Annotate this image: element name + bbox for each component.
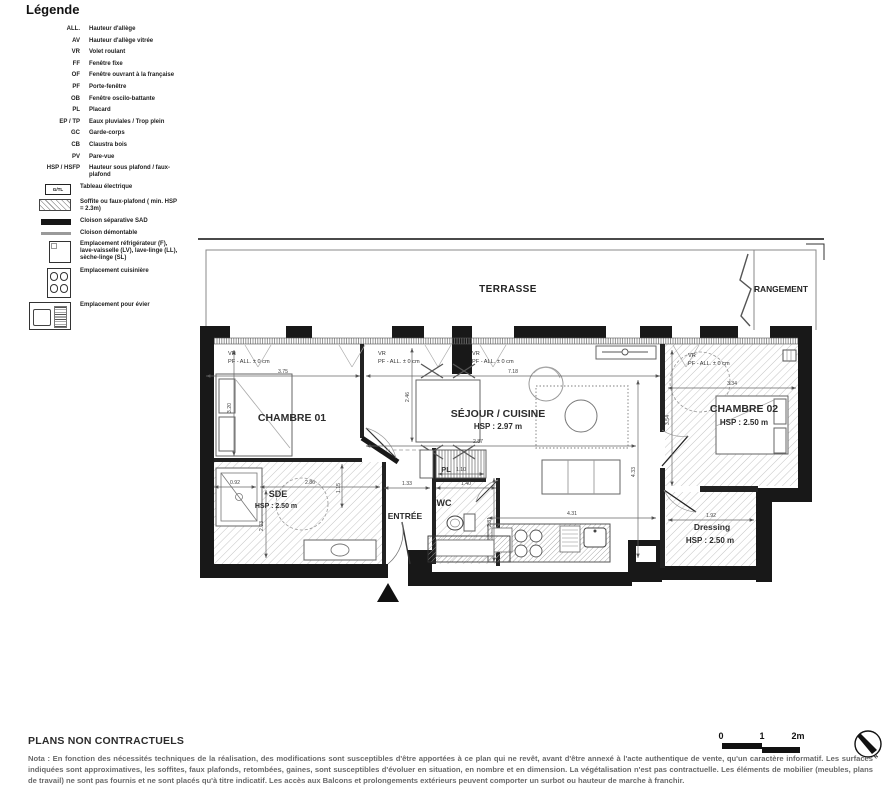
legend-item-all: ALL. Hauteur d'allège bbox=[26, 26, 222, 33]
legend-label: Fenêtre oscilo-battante bbox=[89, 96, 155, 103]
nota-disclaimer: Nota : En fonction des nécessités techni… bbox=[28, 753, 873, 786]
dim-chambre01-width: 3.75 bbox=[278, 369, 288, 375]
ep-tp-box bbox=[783, 350, 796, 361]
legend-item-soffit: Soffite ou faux-plafond ( min. HSP = 2.3… bbox=[26, 199, 222, 213]
legend-item-pl: PL Placard bbox=[26, 107, 222, 114]
window-label-pf: PF - ALL. ± 0 cm bbox=[688, 361, 730, 367]
dim-chambre01-height: 3.20 bbox=[227, 403, 233, 413]
armchair bbox=[529, 367, 563, 401]
scale-tick-1: 1 bbox=[759, 731, 764, 741]
window-label-vr: VR bbox=[472, 351, 480, 357]
legend-label: Hauteur sous plafond / faux-plafond bbox=[89, 165, 191, 179]
legend-abbr: OF bbox=[26, 72, 89, 79]
room-label-chambre01: CHAMBRE 01 bbox=[258, 412, 326, 424]
entry-cabinet bbox=[428, 536, 510, 562]
legend-abbr: FF bbox=[26, 61, 89, 68]
sad-partition-icon bbox=[41, 219, 71, 225]
legend-abbr: PL bbox=[26, 107, 89, 114]
window-strip bbox=[206, 338, 810, 344]
legend-label: Porte-fenêtre bbox=[89, 84, 126, 91]
scale-tick-0: 0 bbox=[718, 731, 723, 741]
window-label-pf: PF - ALL. ± 0 cm bbox=[472, 359, 514, 365]
legend-item-hsp: HSP / HSFP Hauteur sous plafond / faux-p… bbox=[26, 165, 222, 179]
dim-placard-width: 1.10 bbox=[456, 467, 466, 473]
room-label-entree: ENTRÉE bbox=[388, 511, 423, 521]
plans-non-contractuels-title: PLANS NON CONTRACTUELS bbox=[28, 735, 184, 747]
legend-label: Fenêtre ouvrant à la française bbox=[89, 72, 174, 79]
legend-abbr: PV bbox=[26, 154, 89, 161]
soffit-hatch-icon bbox=[39, 199, 71, 211]
legend-item-pv: PV Pare-vue bbox=[26, 154, 222, 161]
legend-item-cooker: Emplacement cuisinière bbox=[26, 268, 222, 298]
dim-wc-height: 2.81 bbox=[487, 517, 493, 527]
dim-kitchen-width: 4.31 bbox=[567, 511, 577, 517]
shower bbox=[216, 468, 262, 526]
window-label-vr: VR bbox=[688, 353, 696, 359]
legend-item-gc: GC Garde-corps bbox=[26, 130, 222, 137]
legend-item-vr: VR Volet roulant bbox=[26, 49, 222, 56]
cooker-slot-icon bbox=[47, 268, 71, 298]
dim-table-zone: 2.46 bbox=[405, 392, 411, 402]
legend-item-sad: Cloison séparative SAD bbox=[26, 218, 222, 225]
fridge-slot bbox=[560, 526, 580, 552]
legend-abbr: AV bbox=[26, 38, 89, 45]
dim-sejour-width: 7.18 bbox=[508, 369, 518, 375]
legend-item-cb: CB Claustra bois bbox=[26, 142, 222, 149]
legend-item-ff: FF Fenêtre fixe bbox=[26, 61, 222, 68]
legend-abbr: CB bbox=[26, 142, 89, 149]
appliance-slot-icon bbox=[49, 241, 71, 263]
room-label-wc: WC bbox=[437, 498, 452, 508]
window-label-vr: VR bbox=[378, 351, 386, 357]
floor-plan-page: Légende ALL. Hauteur d'allège AV Hauteur… bbox=[0, 0, 892, 800]
legend-item-demountable: Cloison démontable bbox=[26, 230, 222, 237]
legend: Légende ALL. Hauteur d'allège AV Hauteur… bbox=[26, 2, 222, 335]
room-label-terrasse: TERRASSE bbox=[479, 284, 537, 295]
legend-label: Soffite ou faux-plafond ( min. HSP = 2.3… bbox=[80, 199, 182, 213]
dim-sde-height: 2.03 bbox=[259, 521, 265, 531]
dim-sde-width: 2.86 bbox=[305, 480, 315, 486]
washbasin bbox=[304, 540, 376, 560]
demountable-partition-icon bbox=[41, 232, 71, 235]
legend-item-appliance: Emplacement réfrigérateur (F), lave-vais… bbox=[26, 241, 222, 263]
legend-item-av: AV Hauteur d'allège vitrée bbox=[26, 38, 222, 45]
legend-label: Tableau électrique bbox=[80, 184, 132, 191]
window-label-vr: VR bbox=[228, 351, 236, 357]
room-hsp-sejour: HSP : 2.97 m bbox=[474, 422, 522, 431]
legend-item-ob: OB Fenêtre oscilo-battante bbox=[26, 96, 222, 103]
rangement-door-zigzag bbox=[740, 254, 751, 326]
legend-label: Hauteur d'allège bbox=[89, 26, 135, 33]
legend-label: Cloison séparative SAD bbox=[80, 218, 148, 225]
electrical-panel-icon: G/TL bbox=[45, 184, 71, 195]
scale-tick-2m: 2m bbox=[791, 731, 804, 741]
legend-item-sink: Emplacement pour évier bbox=[26, 302, 222, 330]
window-label-pf: PF - ALL. ± 0 cm bbox=[228, 359, 270, 365]
room-label-rangement: RANGEMENT bbox=[754, 284, 809, 294]
legend-label: Fenêtre fixe bbox=[89, 61, 123, 68]
legend-abbr: PF bbox=[26, 84, 89, 91]
legend-abbr: VR bbox=[26, 49, 89, 56]
dim-sejour-inner: 2.87 bbox=[473, 439, 483, 445]
room-label-chambre02: CHAMBRE 02 bbox=[710, 403, 778, 415]
sofa bbox=[542, 460, 620, 494]
room-hsp-dressing: HSP : 2.50 m bbox=[686, 536, 734, 545]
window-label-pf: PF - ALL. ± 0 cm bbox=[378, 359, 420, 365]
room-label-placard: PL bbox=[441, 465, 451, 474]
sink-slot-icon bbox=[29, 302, 71, 330]
dim-wc-width: 1.40 bbox=[461, 481, 471, 487]
legend-label: Placard bbox=[89, 107, 111, 114]
legend-label: Pare-vue bbox=[89, 154, 114, 161]
legend-label: Emplacement cuisinière bbox=[80, 268, 149, 275]
legend-label: Claustra bois bbox=[89, 142, 127, 149]
room-hsp-sde: HSP : 2.50 m bbox=[255, 503, 297, 510]
legend-label: Hauteur d'allège vitrée bbox=[89, 38, 153, 45]
dim-dressing-width: 1.92 bbox=[706, 513, 716, 519]
legend-abbr: OB bbox=[26, 96, 89, 103]
room-label-dressing: Dressing bbox=[694, 522, 730, 532]
dim-shower-width: 0.92 bbox=[230, 480, 240, 486]
legend-label: Volet roulant bbox=[89, 49, 125, 56]
entrance-marker-triangle bbox=[377, 583, 399, 602]
room-label-sejour: SÉJOUR / CUISINE bbox=[451, 407, 546, 420]
floor-plan-drawing: 3.75 7.18 3.34 3.20 2.46 2.87 4.33 3.54 … bbox=[195, 235, 840, 610]
legend-title: Légende bbox=[26, 2, 222, 17]
legend-item-eptp: EP / TP Eaux pluviales / Trop plein bbox=[26, 119, 222, 126]
legend-label: Garde-corps bbox=[89, 130, 125, 137]
legend-label: Emplacement pour évier bbox=[80, 302, 150, 309]
scale-bar: 0 1 2m bbox=[718, 731, 804, 753]
room-label-sde: SDE bbox=[269, 489, 288, 499]
legend-label: Cloison démontable bbox=[80, 230, 137, 237]
legend-item-gtl: G/TL Tableau électrique bbox=[26, 184, 222, 195]
legend-item-pf: PF Porte-fenêtre bbox=[26, 84, 222, 91]
radiator bbox=[596, 346, 656, 359]
room-hsp-chambre02: HSP : 2.50 m bbox=[720, 418, 768, 427]
legend-abbr: HSP / HSFP bbox=[26, 165, 89, 172]
round-table bbox=[565, 400, 597, 432]
legend-item-of: OF Fenêtre ouvrant à la française bbox=[26, 72, 222, 79]
dim-entree-width: 1.33 bbox=[402, 481, 412, 487]
legend-abbr: EP / TP bbox=[26, 119, 89, 126]
dim-sejour-height: 4.33 bbox=[631, 467, 637, 477]
dim-hall: 1.15 bbox=[336, 483, 342, 493]
legend-label: Emplacement réfrigérateur (F), lave-vais… bbox=[80, 241, 182, 262]
dim-chambre02-height: 3.54 bbox=[665, 415, 671, 425]
legend-abbr: GC bbox=[26, 130, 89, 137]
dim-chambre02-width: 3.34 bbox=[727, 381, 737, 387]
legend-abbr: ALL. bbox=[26, 26, 89, 33]
legend-label: Eaux pluviales / Trop plein bbox=[89, 119, 164, 126]
